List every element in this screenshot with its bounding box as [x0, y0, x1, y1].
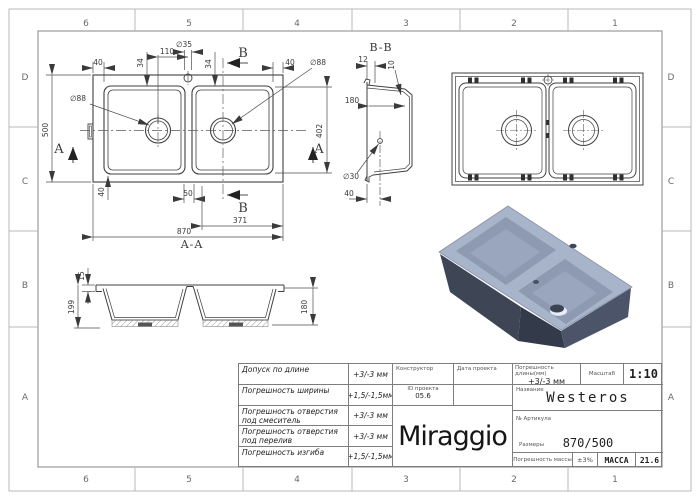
dim-diameter-88-left: ∅88: [70, 94, 86, 103]
zone-right-d: D: [668, 73, 675, 83]
section-letter-b-top: B: [238, 46, 248, 61]
section-letter-a-right: A: [313, 142, 324, 157]
tolerance-row-value: +1,5/-1,5мм: [349, 385, 393, 406]
length-tolerance-cell: Погрешность длины(мм) +3/-3 мм: [513, 364, 581, 385]
logo-cell: Miraggio: [393, 406, 513, 466]
bottom-lip: [365, 175, 373, 182]
bb-dimension-lines: [349, 61, 405, 203]
zone-bottom-4: 4: [294, 475, 300, 485]
dim-12: 12: [358, 55, 368, 64]
scale-label: Масштаб: [581, 364, 624, 385]
aa-dimension-lines: [74, 268, 318, 328]
zone-top-1: 1: [612, 19, 618, 29]
zone-bottom-2: 2: [511, 475, 517, 485]
constructor-label: Конструктор: [393, 364, 454, 385]
render-drain-hole: [550, 305, 564, 313]
zone-left-c: C: [22, 177, 28, 187]
section-aa-view: 15 199 180: [67, 268, 318, 328]
dim-diameter-30: ∅30: [343, 172, 359, 181]
name-cell: Название Westeros: [513, 385, 663, 411]
dim-34-left: 34: [136, 58, 145, 68]
sizes-label: Размеры: [516, 440, 544, 448]
zone-left-a: A: [22, 393, 29, 403]
drawing-sheet: 6 5 4 3 2 1 6 5 4 3 2 1 D C B A D C B A: [0, 0, 700, 500]
dim-870: 870: [177, 227, 192, 236]
section-bb-title: B-B: [369, 41, 392, 54]
dim-402: 402: [315, 124, 324, 139]
sink-outline: [93, 75, 283, 182]
zone-bottom-3: 3: [403, 475, 409, 485]
zone-right-b: B: [668, 281, 674, 291]
zone-bottom-1: 1: [612, 475, 618, 485]
render-faucet-hole: [569, 244, 576, 249]
mass-tolerance-value: ±3%: [573, 453, 598, 467]
zone-left-b: B: [22, 281, 28, 291]
zone-right-c: C: [668, 177, 674, 187]
plan-dimension-lines: [46, 50, 332, 241]
dim-40-bottom-left: 40: [97, 187, 106, 197]
render-overflow-hole: [533, 280, 539, 284]
project-id-cell: ID проекта 05.6: [393, 385, 454, 406]
plan-view: 40 34 110 ∅35 34 B 40 ∅88 ∅88 500 A A 40…: [41, 40, 332, 251]
dim-50: 50: [183, 189, 193, 198]
dim-15: 15: [77, 271, 86, 281]
zone-top-3: 3: [403, 19, 409, 29]
dim-diameter-35: ∅35: [176, 40, 192, 49]
left-basin-rim: [104, 86, 185, 174]
tolerance-row-name: Погрешность ширины: [239, 385, 349, 406]
zone-left-d: D: [22, 73, 29, 83]
dim-40-bb: 40: [344, 189, 354, 198]
tolerance-row-name: Допуск по длине: [239, 364, 349, 385]
zone-bottom-6: 6: [83, 475, 89, 485]
zone-top-2: 2: [511, 19, 517, 29]
dim-199: 199: [67, 300, 76, 315]
zone-top-6: 6: [83, 19, 89, 29]
section-bb-view: B-B 12 10 180 ∅30 40: [343, 41, 412, 206]
dim-34-right: 34: [204, 59, 213, 69]
zone-right-a: A: [668, 393, 675, 403]
article-label: № Артикула: [513, 411, 663, 422]
project-date-label: Дата проекта: [454, 364, 513, 385]
right-basin-profile: [194, 289, 276, 320]
dim-180-bb: 180: [345, 96, 360, 105]
tolerance-row-name: Погрешность отверстия под перелив: [239, 426, 349, 447]
tolerance-row-value: +3/-3 мм: [349, 406, 393, 426]
article-sizes-cell: № Артикула Размеры 870/500: [513, 411, 663, 453]
section-aa-title: A-A: [180, 238, 204, 251]
title-block: Допуск по длине +3/-3 мм Погрешность шир…: [238, 363, 662, 467]
dim-40-top-right: 40: [285, 58, 295, 67]
brand-logo: Miraggio: [398, 421, 507, 452]
bottom-view: [452, 73, 643, 185]
dim-diameter-88-right: ∅88: [310, 58, 326, 67]
tolerance-row-value: +3/-3 мм: [349, 364, 393, 385]
left-basin-profile: [103, 289, 186, 321]
scale-value: 1:10: [624, 364, 663, 385]
divider-profile: [186, 287, 194, 290]
zone-top-4: 4: [294, 19, 300, 29]
project-date-value-cell: [454, 385, 513, 406]
dim-10: 10: [387, 60, 396, 70]
render-3d-view: [439, 206, 632, 348]
dim-371: 371: [233, 216, 248, 225]
mass-tolerance-label: Погрешность массы: [513, 453, 573, 467]
mass-label: МАССА: [598, 453, 636, 467]
project-id-label: ID проекта: [393, 385, 453, 392]
dim-110: 110: [160, 47, 175, 56]
length-tolerance-label: Погрешность длины(мм): [513, 364, 580, 377]
length-tolerance-value: +3/-3 мм: [513, 377, 580, 385]
dim-40-top-left: 40: [93, 58, 103, 67]
zone-top-5: 5: [186, 19, 192, 29]
section-letter-b-bottom: B: [238, 201, 248, 216]
tolerance-row-name: Погрешность отверстия под смеситель: [239, 406, 349, 426]
project-id-value: 05.6: [393, 392, 453, 400]
centerlines: [80, 58, 306, 202]
tolerance-row-name: Погрешность изгиба: [239, 447, 349, 466]
dim-500: 500: [41, 123, 50, 138]
tolerance-row-value: +1,5/-1,5мм: [349, 447, 393, 466]
tolerance-row-value: +3/-3 мм: [349, 426, 393, 447]
section-letter-a-left: A: [53, 142, 64, 157]
dim-180-aa: 180: [300, 300, 309, 315]
mass-value: 21.6: [636, 453, 663, 467]
zone-bottom-5: 5: [186, 475, 192, 485]
